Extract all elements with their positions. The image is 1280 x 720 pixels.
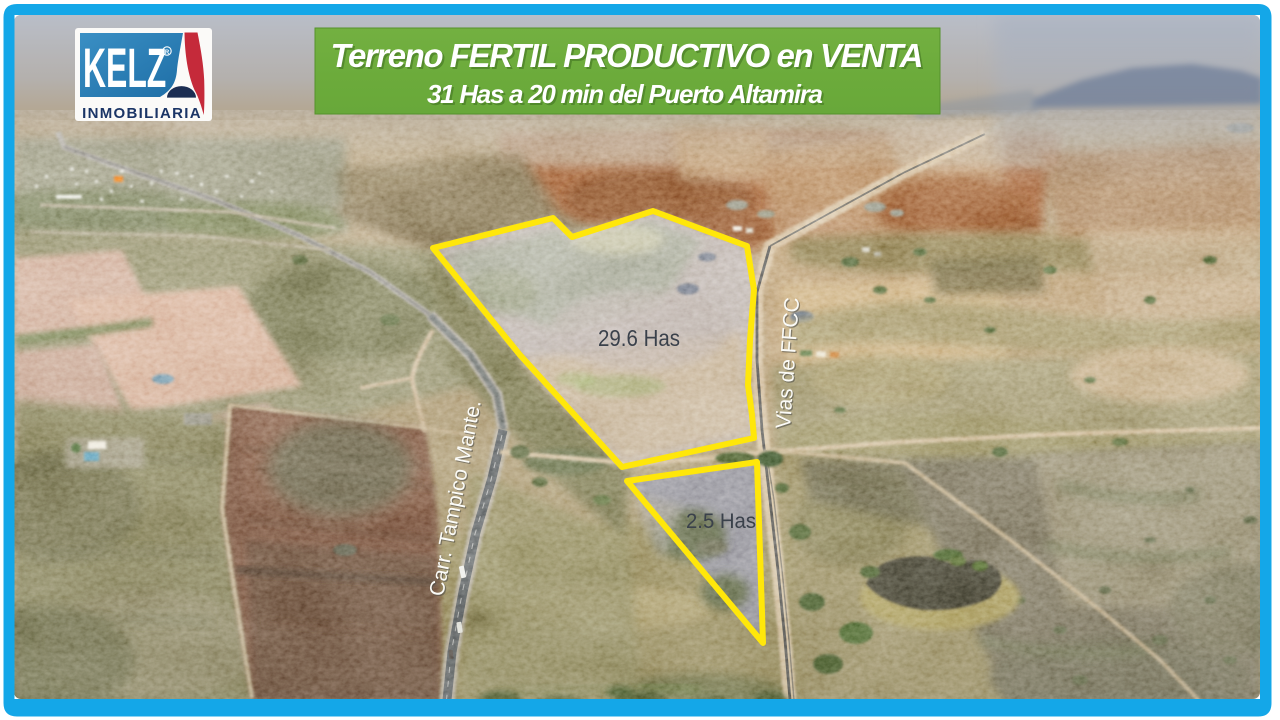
svg-text:Terreno FERTIL PRODUCTIVO en V: Terreno FERTIL PRODUCTIVO en VENTA [331, 37, 924, 74]
svg-text:31 Has a 20 min del Puerto Alt: 31 Has a 20 min del Puerto Altamira [427, 79, 823, 109]
svg-text:INMOBILIARIA: INMOBILIARIA [82, 105, 202, 122]
svg-text:KELZ: KELZ [83, 37, 166, 100]
svg-text:29.6 Has: 29.6 Has [598, 325, 680, 351]
svg-text:R: R [165, 50, 170, 56]
svg-text:2.5 Has: 2.5 Has [686, 510, 756, 533]
